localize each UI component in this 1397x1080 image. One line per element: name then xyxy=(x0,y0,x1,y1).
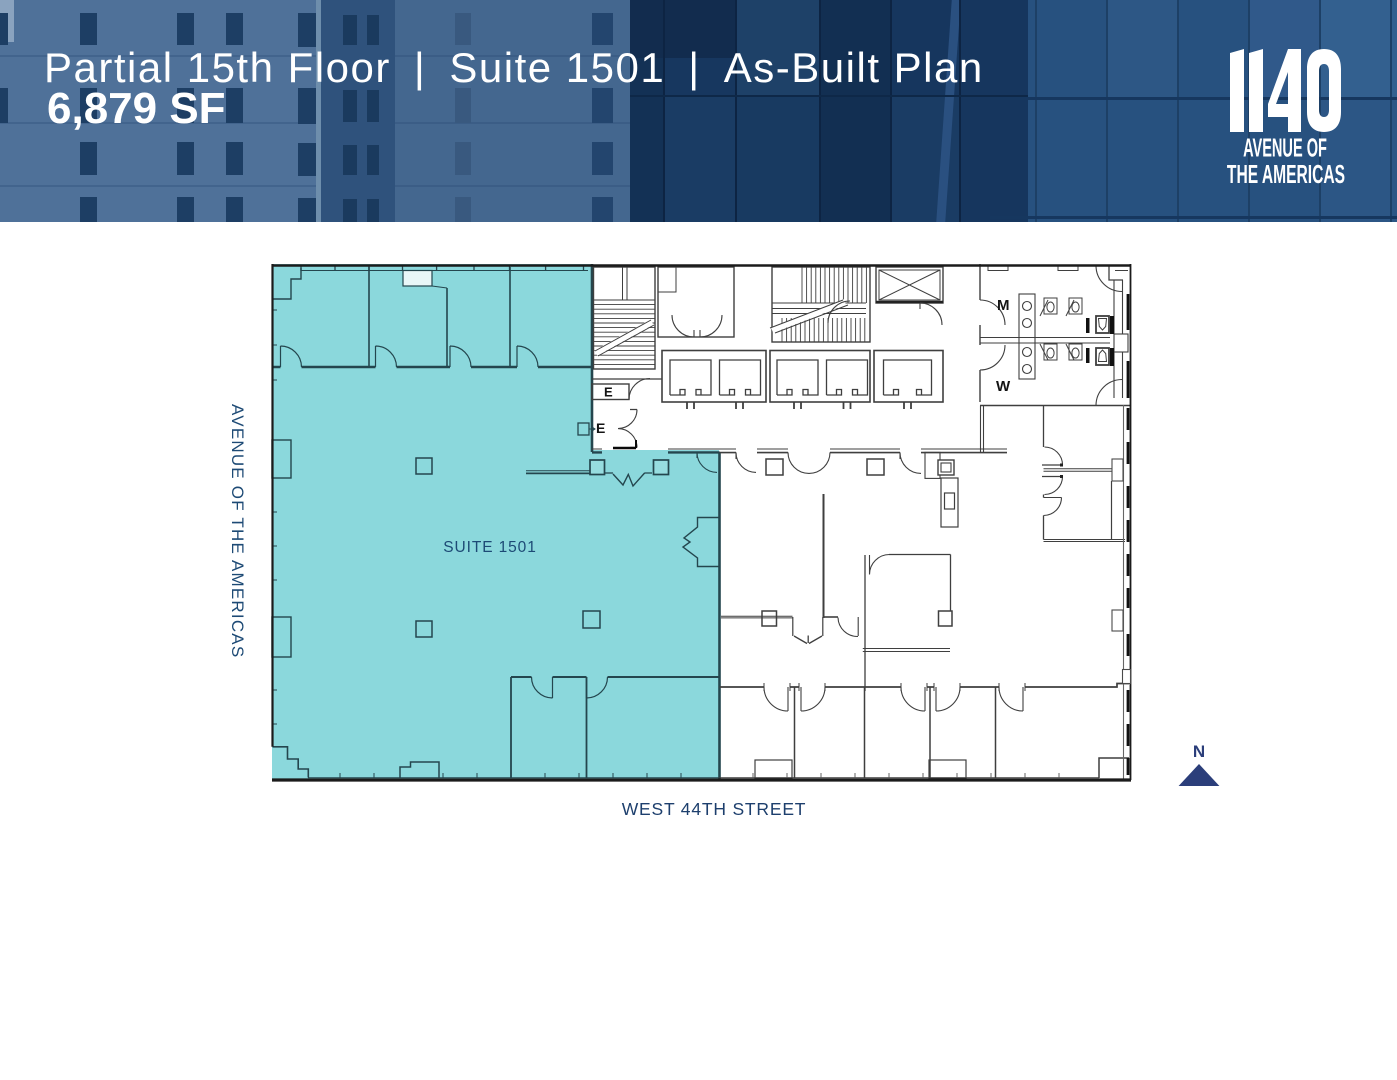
svg-text:SUITE 1501: SUITE 1501 xyxy=(443,539,536,556)
svg-text:AVENUE OF THE AMERICAS: AVENUE OF THE AMERICAS xyxy=(228,404,247,658)
svg-text:E: E xyxy=(604,385,613,400)
svg-text:E: E xyxy=(596,420,605,436)
svg-text:M: M xyxy=(997,297,1010,314)
svg-text:WEST 44TH STREET: WEST 44TH STREET xyxy=(622,799,807,819)
svg-text:N: N xyxy=(1193,742,1205,761)
svg-text:W: W xyxy=(996,378,1011,395)
